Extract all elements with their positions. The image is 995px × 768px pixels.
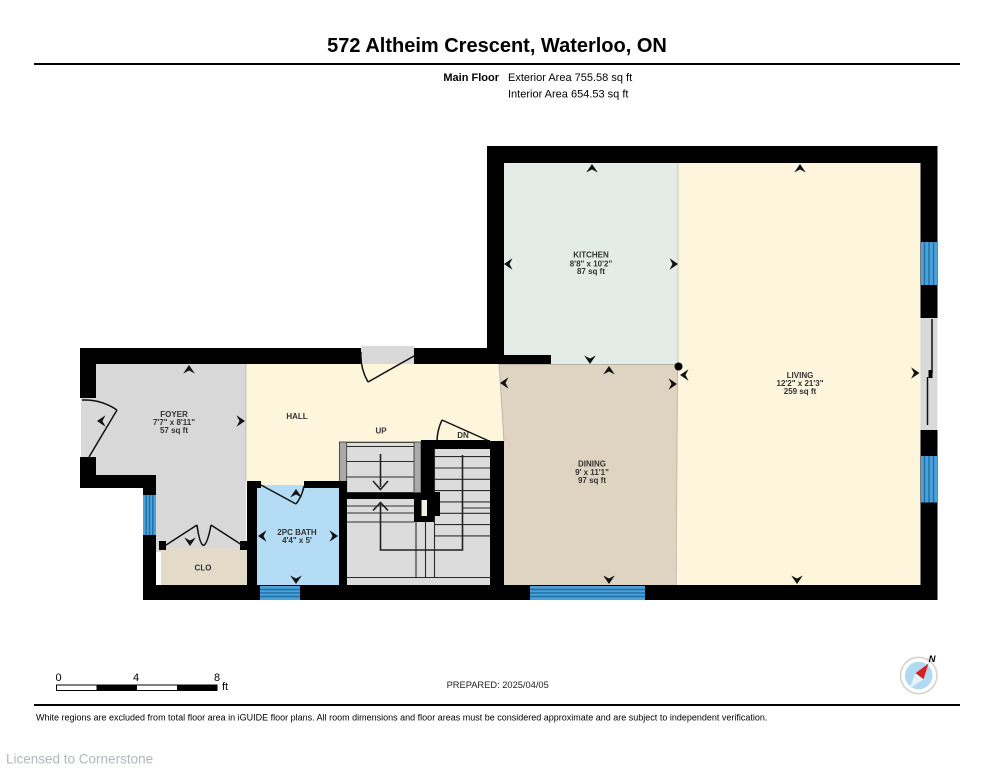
svg-text:259 sq ft: 259 sq ft [784,387,817,396]
svg-text:N: N [929,654,937,665]
svg-text:87 sq ft: 87 sq ft [577,267,605,276]
svg-text:0: 0 [55,672,61,684]
svg-text:ft: ft [222,681,228,693]
svg-text:Exterior Area 755.58 sq ft: Exterior Area 755.58 sq ft [508,72,632,84]
svg-text:CLO: CLO [195,564,212,573]
svg-text:8: 8 [214,672,220,684]
svg-text:4: 4 [133,672,139,684]
svg-text:Main Floor: Main Floor [443,72,499,84]
svg-text:57 sq ft: 57 sq ft [160,426,188,435]
svg-text:Licensed to Cornerstone: Licensed to Cornerstone [6,752,153,767]
svg-text:PREPARED: 2025/04/05: PREPARED: 2025/04/05 [447,680,549,690]
svg-text:4'4" x 5': 4'4" x 5' [282,536,312,545]
svg-text:572 Altheim Crescent, Waterloo: 572 Altheim Crescent, Waterloo, ON [327,35,667,57]
svg-text:White regions are excluded fro: White regions are excluded from total fl… [36,713,767,723]
svg-text:DN: DN [457,431,469,440]
svg-text:97 sq ft: 97 sq ft [578,476,606,485]
svg-text:HALL: HALL [286,412,307,421]
svg-text:UP: UP [375,426,387,435]
svg-text:Interior Area 654.53 sq ft: Interior Area 654.53 sq ft [508,88,628,100]
